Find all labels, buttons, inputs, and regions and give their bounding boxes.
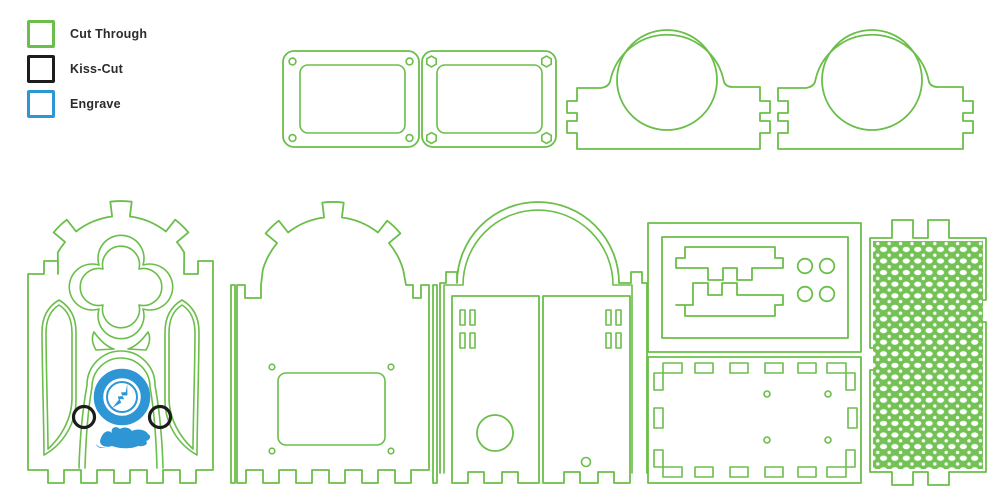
- app-canvas: Cut Through Kiss-Cut Engrave: [0, 0, 1000, 500]
- door-right[interactable]: [543, 296, 630, 483]
- part-door-panel[interactable]: [440, 202, 647, 483]
- lancet-window-left: [42, 300, 76, 455]
- part-back-arch-panel[interactable]: [231, 202, 437, 483]
- lancet-window-right: [165, 300, 199, 455]
- part-arch-bracket-a[interactable]: [567, 30, 770, 149]
- part-interlock-tray[interactable]: [648, 223, 861, 352]
- part-lid-frame-hex-holes[interactable]: [422, 51, 556, 147]
- interlock-bracket-bottom: [676, 283, 783, 316]
- part-lid-frame-round-holes[interactable]: [283, 51, 419, 147]
- mesh-pattern: [873, 241, 983, 469]
- part-arch-bracket-b[interactable]: [778, 30, 973, 149]
- interlock-bracket-top: [676, 247, 783, 280]
- part-gothic-facade-panel[interactable]: [28, 201, 213, 483]
- design-canvas[interactable]: [0, 0, 1000, 500]
- part-flex-mesh-panel[interactable]: [870, 220, 986, 485]
- engraved-compass-dial[interactable]: [99, 374, 146, 421]
- engraved-logo[interactable]: [96, 427, 150, 448]
- door-left[interactable]: [452, 296, 539, 483]
- ring-hole: [798, 287, 813, 302]
- part-slotted-base-plate[interactable]: [648, 357, 861, 483]
- ring-hole: [798, 259, 813, 274]
